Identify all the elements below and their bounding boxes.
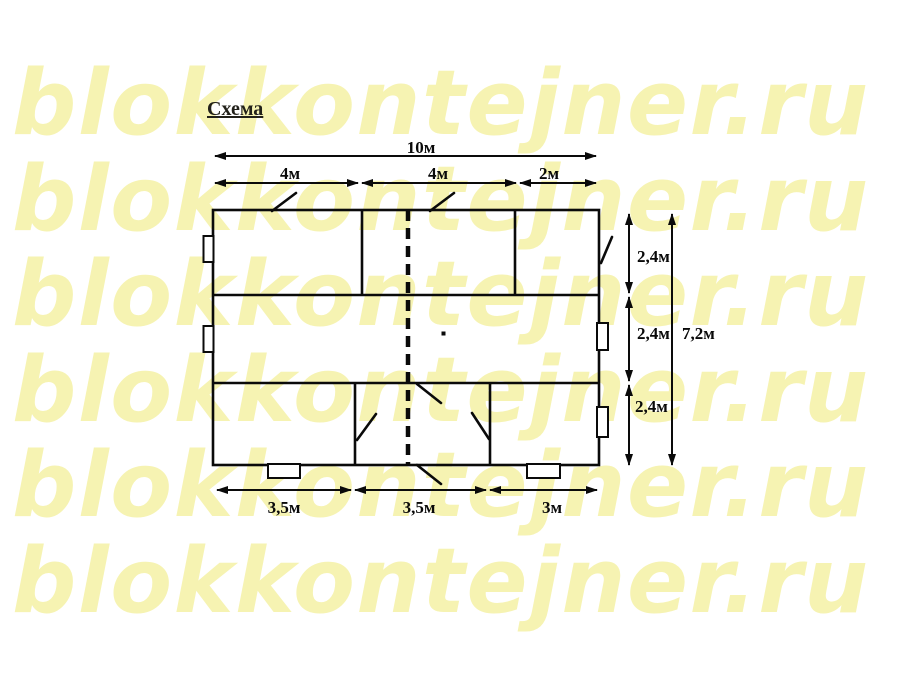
dim-label-bottom-segment-2: 3,5м [403, 498, 436, 518]
dim-label-bottom-segment-1: 3,5м [268, 498, 301, 518]
door-bottom-left-room [357, 414, 376, 440]
porch-bottom-left [268, 464, 300, 478]
door-right-top [601, 237, 612, 263]
dim-label-right-segment-2: 2,4м [637, 324, 670, 344]
door-bottom-right-room [472, 413, 489, 439]
window-right-middle [597, 323, 608, 350]
dim-label-right-total: 7,2м [682, 324, 715, 344]
window-left-top [204, 236, 214, 262]
dim-label-top-total: 10м [407, 138, 436, 158]
dim-label-top-segment-1: 4м [280, 164, 300, 184]
dim-label-right-segment-1: 2,4м [637, 247, 670, 267]
door-top-left [272, 193, 296, 211]
dim-label-bottom-segment-3: 3м [542, 498, 562, 518]
dim-label-top-segment-3: 2м [539, 164, 559, 184]
porch-bottom-right [527, 464, 560, 478]
floor-plan-drawing [0, 0, 900, 675]
page-title: Схема [207, 98, 263, 121]
dim-label-right-segment-3: 2,4м [635, 397, 668, 417]
interior-vertical-walls [355, 210, 515, 465]
door-top-middle [430, 193, 454, 211]
center-dot-mark [442, 332, 446, 336]
door-bottom-wall [417, 465, 441, 484]
door-swings [272, 193, 612, 484]
dim-label-top-segment-2: 4м [428, 164, 448, 184]
window-left-middle [204, 326, 214, 352]
door-middle-wall [417, 384, 441, 403]
window-right-bottom [597, 407, 608, 437]
